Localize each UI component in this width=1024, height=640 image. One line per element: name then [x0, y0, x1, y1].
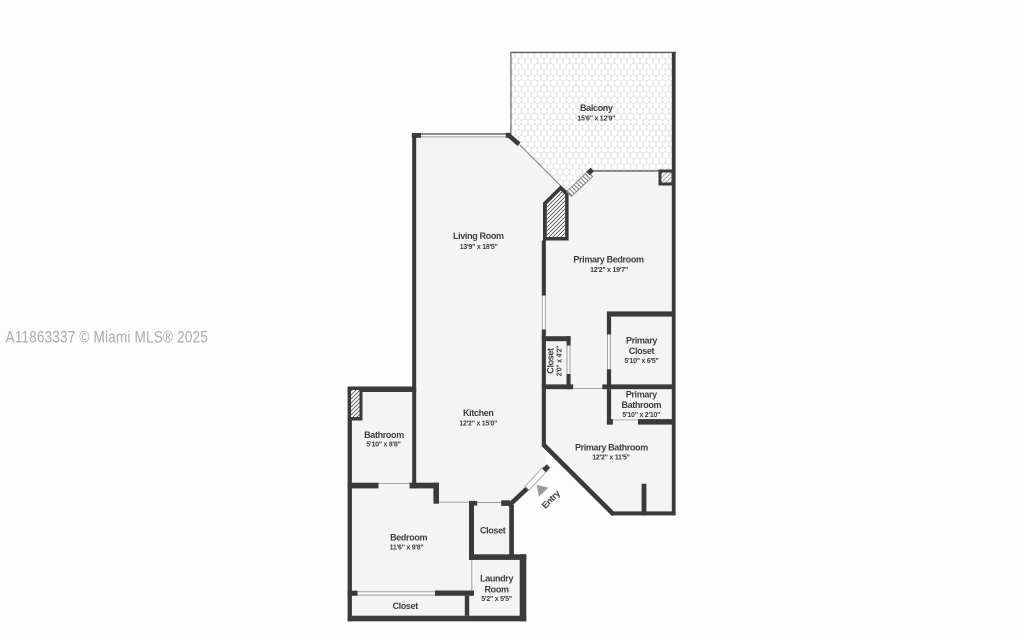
svg-text:Kitchen: Kitchen	[463, 408, 494, 418]
svg-text:Closet: Closet	[392, 601, 418, 611]
svg-text:2'0" x 4'2": 2'0" x 4'2"	[557, 346, 564, 377]
svg-text:5'10" x 8'8": 5'10" x 8'8"	[366, 441, 400, 448]
svg-text:5'10" x 2'10": 5'10" x 2'10"	[622, 412, 660, 419]
svg-text:Primary Bathroom: Primary Bathroom	[575, 442, 648, 452]
svg-text:12'2" x 11'5": 12'2" x 11'5"	[592, 455, 629, 462]
svg-text:Balcony: Balcony	[580, 103, 613, 113]
svg-text:Bathroom: Bathroom	[364, 430, 404, 440]
svg-text:12'2" x 15'0": 12'2" x 15'0"	[459, 420, 497, 427]
svg-text:Laundry: Laundry	[480, 574, 513, 584]
svg-text:Closet: Closet	[546, 348, 556, 374]
svg-text:Living Room: Living Room	[453, 231, 504, 241]
svg-text:5'10" x 6'5": 5'10" x 6'5"	[624, 358, 658, 365]
svg-text:12'2" x 19'7": 12'2" x 19'7"	[590, 267, 628, 274]
svg-text:11'6" x 9'8": 11'6" x 9'8"	[390, 545, 424, 552]
svg-text:Closet: Closet	[629, 346, 655, 356]
svg-text:Primary: Primary	[626, 389, 657, 399]
svg-text:Bedroom: Bedroom	[390, 533, 427, 543]
svg-text:A11863337 © Miami MLS® 2025: A11863337 © Miami MLS® 2025	[6, 328, 208, 347]
svg-text:Bathroom: Bathroom	[621, 400, 661, 410]
svg-text:15'6" x 12'9": 15'6" x 12'9"	[577, 115, 615, 122]
svg-text:Room: Room	[485, 584, 509, 594]
svg-text:Closet: Closet	[480, 525, 506, 535]
svg-text:Primary: Primary	[626, 336, 657, 346]
svg-text:5'2" x 5'5": 5'2" x 5'5"	[481, 596, 512, 603]
svg-text:13'9" x 18'5": 13'9" x 18'5"	[460, 244, 498, 251]
svg-text:Primary Bedroom: Primary Bedroom	[573, 254, 644, 264]
